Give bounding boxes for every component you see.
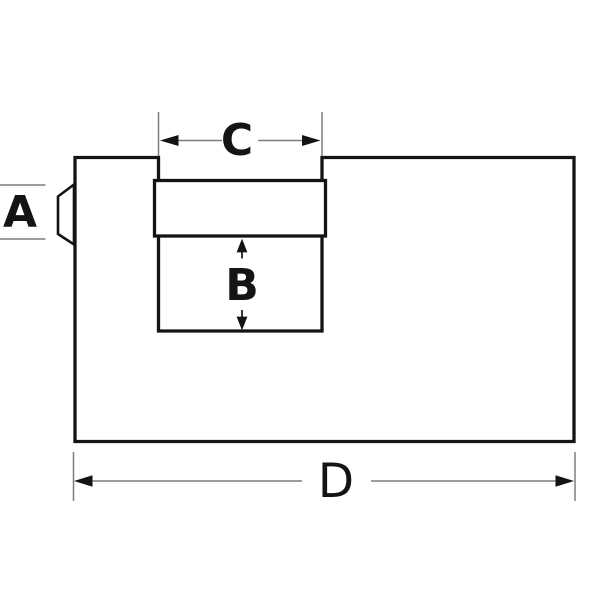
dim-c-label: C bbox=[221, 115, 253, 166]
padlock-dimension-diagram: C A B D bbox=[0, 0, 600, 600]
dim-b-arrowhead-down bbox=[237, 317, 248, 331]
dim-c-arrowhead-left bbox=[160, 135, 179, 146]
dim-d-arrowhead-right bbox=[556, 475, 575, 486]
dim-b-arrowhead-up bbox=[237, 239, 248, 253]
dim-b-label: B bbox=[225, 260, 259, 311]
dim-c-arrowhead-right bbox=[302, 135, 321, 146]
shackle-end-tab bbox=[58, 185, 74, 245]
dim-d-label: D bbox=[318, 454, 354, 509]
shackle-bar bbox=[155, 181, 326, 237]
diagram-canvas: C A B D bbox=[0, 0, 600, 600]
dim-d-arrowhead-left bbox=[74, 475, 93, 486]
dim-a-label: A bbox=[3, 187, 37, 238]
